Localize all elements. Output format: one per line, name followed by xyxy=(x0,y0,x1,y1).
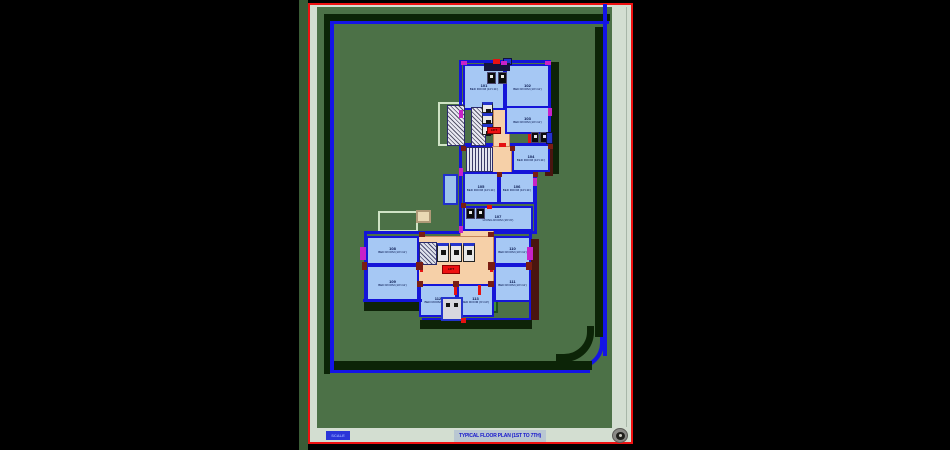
boundary-line xyxy=(330,370,590,373)
boundary-line xyxy=(331,21,609,24)
door-mark xyxy=(459,168,463,176)
door-mark xyxy=(487,205,492,209)
door-mark xyxy=(459,110,463,118)
north-compass-icon xyxy=(612,428,628,443)
cad-viewport[interactable]: TYPICAL FLOOR PLAN (1ST TO 7TH) SCALE 10… xyxy=(0,0,950,450)
door-mark xyxy=(528,134,531,143)
room-label: BED ROOM (10'×11') xyxy=(467,189,496,192)
room-label: BED ROOM (10'×11') xyxy=(470,88,499,91)
room-label: BED ROOM (10'×11') xyxy=(378,251,407,254)
stair-vst xyxy=(466,147,493,172)
door-mark xyxy=(461,146,466,151)
margin-frame-line xyxy=(626,7,627,427)
door-mark xyxy=(548,144,553,149)
lift-label: LIFT xyxy=(442,265,460,274)
room-label: BED ROOM (10'×11') xyxy=(498,251,527,254)
door-mark xyxy=(545,61,551,65)
room-label: BED ROOM (10'×11') xyxy=(378,284,407,287)
shadow-band xyxy=(364,302,420,311)
fixture-wc xyxy=(476,208,485,219)
door-mark xyxy=(533,178,537,186)
room: 106BED ROOM (10'×11') xyxy=(499,172,535,204)
room: 111BED ROOM (10'×11') xyxy=(494,265,531,302)
fixture-unit xyxy=(482,102,493,113)
room: 110BED ROOM (10'×11') xyxy=(494,236,531,265)
boundary-line xyxy=(330,21,334,373)
door-mark xyxy=(461,318,466,323)
court-outline xyxy=(443,174,458,205)
door-mark xyxy=(526,262,532,270)
room-label: BED ROOM (10'×11') xyxy=(513,88,542,91)
fixture-wc xyxy=(487,72,496,84)
room-label: LIVING ROOM (16'×9') xyxy=(483,219,514,222)
scale-tag: SCALE xyxy=(326,431,350,440)
fixture-wc xyxy=(531,132,539,143)
door-mark xyxy=(548,108,552,116)
court-outline xyxy=(416,210,431,223)
fixture-wc xyxy=(498,72,507,84)
room: 102BED ROOM (10'×11') xyxy=(505,64,550,110)
door-mark xyxy=(453,281,459,287)
door-mark xyxy=(527,247,533,260)
room-label: BED ROOM (10'×11') xyxy=(513,121,542,124)
door-mark xyxy=(417,281,423,287)
fixture-unit xyxy=(482,113,493,124)
room-label: BED ROOM (10'×11') xyxy=(498,284,527,287)
door-mark xyxy=(533,172,538,177)
wall-segment xyxy=(363,299,422,302)
door-mark xyxy=(461,203,466,208)
drawing-title: TYPICAL FLOOR PLAN (1ST TO 7TH) xyxy=(459,433,541,439)
door-mark xyxy=(488,281,494,287)
door-mark xyxy=(488,232,494,237)
compass-needle xyxy=(619,434,622,437)
door-mark xyxy=(510,146,515,151)
shadow-band xyxy=(420,320,532,329)
door-mark xyxy=(419,232,425,237)
door-mark xyxy=(501,61,507,65)
corridor xyxy=(492,146,512,174)
boundary-band xyxy=(595,27,603,337)
fixture-unit xyxy=(450,243,462,262)
boundary-band xyxy=(330,361,592,370)
room-label: BED ROOM (9'×10') xyxy=(462,301,489,304)
room: 104BED ROOM (10'×11') xyxy=(512,144,550,172)
door-mark xyxy=(459,226,463,233)
fixture-unit xyxy=(463,243,475,262)
door-mark xyxy=(416,262,423,270)
title-highlight: TYPICAL FLOOR PLAN (1ST TO 7TH) xyxy=(454,430,546,442)
lift-label: LIFT xyxy=(487,127,501,134)
room-label: BED ROOM (10'×11') xyxy=(503,189,532,192)
boundary-line xyxy=(603,4,607,356)
boundary-band xyxy=(326,14,610,21)
fixture-blue xyxy=(546,132,553,144)
room: 105BED ROOM (10'×11') xyxy=(463,172,499,204)
court-outline xyxy=(378,211,418,232)
door-mark xyxy=(497,172,502,177)
door-mark xyxy=(461,61,467,65)
fixture-sink xyxy=(441,297,463,321)
door-mark xyxy=(360,247,366,260)
modelspace-gutter xyxy=(299,0,308,450)
room: 108BED ROOM (10'×11') xyxy=(366,236,419,265)
door-mark xyxy=(478,285,481,295)
room: 109BED ROOM (10'×11') xyxy=(366,265,419,301)
room-label: BED ROOM (10'×11') xyxy=(517,159,546,162)
room: 103BED ROOM (10'×11') xyxy=(505,106,550,134)
door-mark xyxy=(362,262,367,270)
door-mark xyxy=(488,262,495,270)
door-mark xyxy=(499,143,506,147)
door-mark xyxy=(493,59,500,64)
fixture-unit xyxy=(437,243,449,262)
fixture-wc xyxy=(466,208,475,219)
